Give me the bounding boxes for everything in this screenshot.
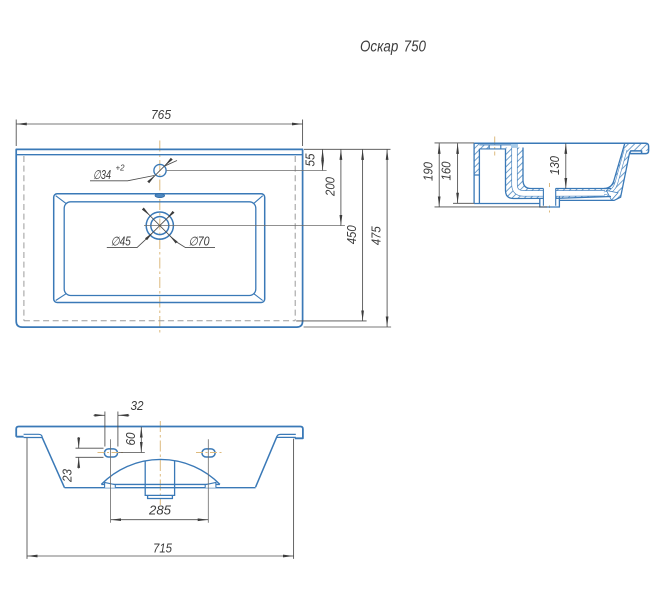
svg-text:715: 715: [153, 542, 172, 556]
svg-text:60: 60: [124, 432, 138, 445]
svg-text:32: 32: [131, 399, 144, 413]
svg-text:200: 200: [324, 177, 338, 197]
svg-text:+2: +2: [116, 163, 125, 173]
svg-text:190: 190: [421, 162, 435, 181]
svg-text:285: 285: [148, 504, 171, 518]
svg-text:765: 765: [151, 108, 171, 122]
svg-text:475: 475: [370, 226, 384, 245]
svg-text:55: 55: [304, 153, 318, 166]
svg-text:23: 23: [61, 469, 75, 483]
svg-text:∅34: ∅34: [93, 168, 111, 182]
svg-text:Оскар 750: Оскар 750: [360, 39, 426, 56]
svg-text:∅45: ∅45: [111, 235, 131, 249]
svg-text:130: 130: [548, 156, 562, 175]
svg-text:∅70: ∅70: [189, 235, 210, 249]
svg-text:450: 450: [345, 225, 359, 244]
svg-text:160: 160: [440, 161, 454, 180]
